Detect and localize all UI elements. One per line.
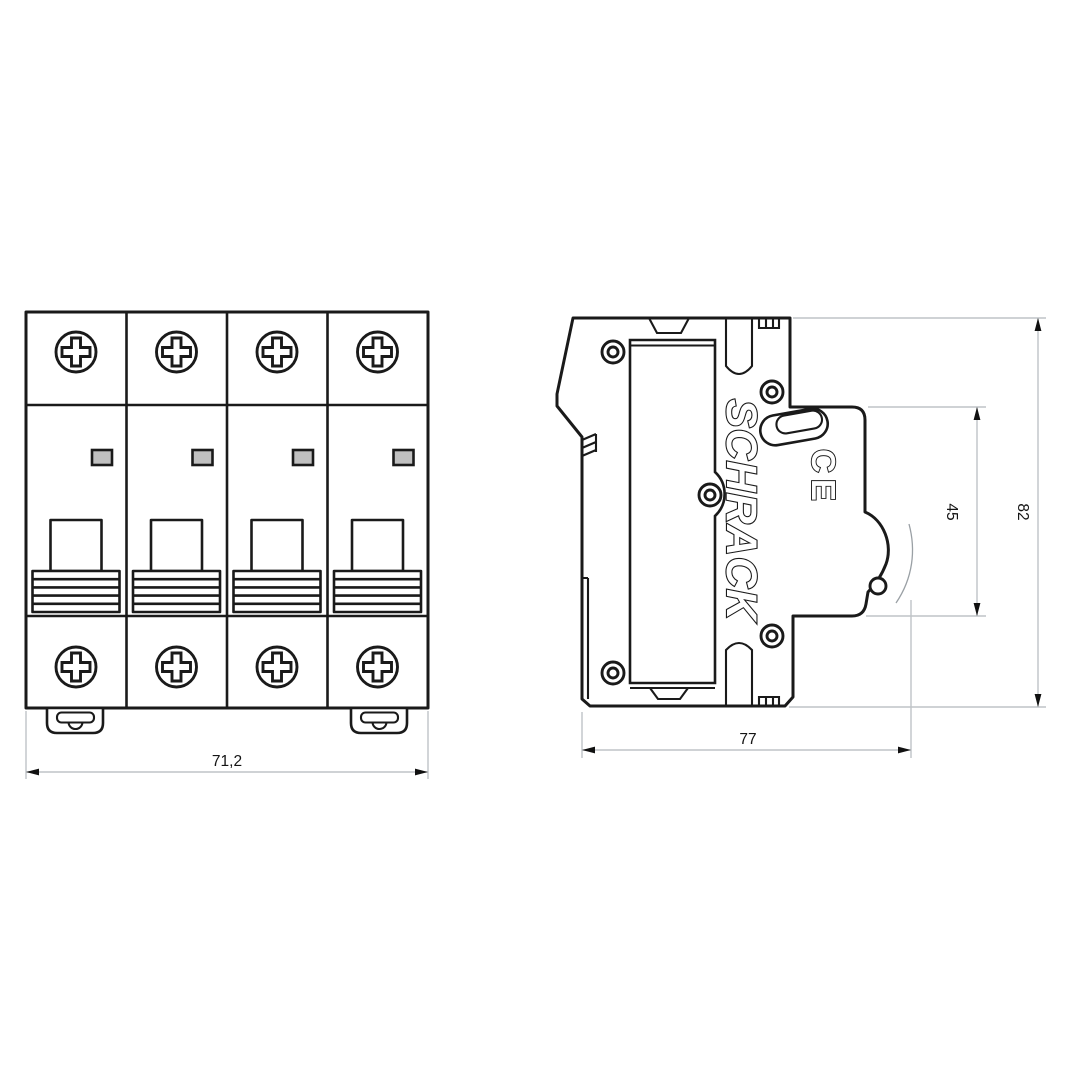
pole-3 — [234, 332, 321, 687]
product-dimension-sheet: 71,2 — [0, 0, 1080, 1080]
pole-1 — [33, 332, 120, 687]
brand-text: SCHRACK — [717, 399, 765, 623]
ce-mark-text: CE — [805, 449, 842, 507]
toggle-swing-arc — [896, 524, 913, 603]
dim-total-height-label: 82 — [1014, 503, 1031, 520]
pole-4 — [334, 332, 421, 687]
din-clip-left — [47, 708, 103, 733]
toggle-tip — [870, 578, 886, 594]
din-clip-right — [351, 708, 407, 733]
pole-2 — [133, 332, 220, 687]
dim-front-height-label: 45 — [943, 503, 960, 520]
dimensional-drawing: 71,2 — [0, 0, 1080, 1080]
dim-depth-label: 77 — [739, 731, 756, 748]
breaker-side-view: SCHRACK CE 77 45 82 — [557, 318, 1046, 758]
dim-width-label: 71,2 — [212, 753, 242, 770]
breaker-front-view: 71,2 — [26, 312, 428, 779]
